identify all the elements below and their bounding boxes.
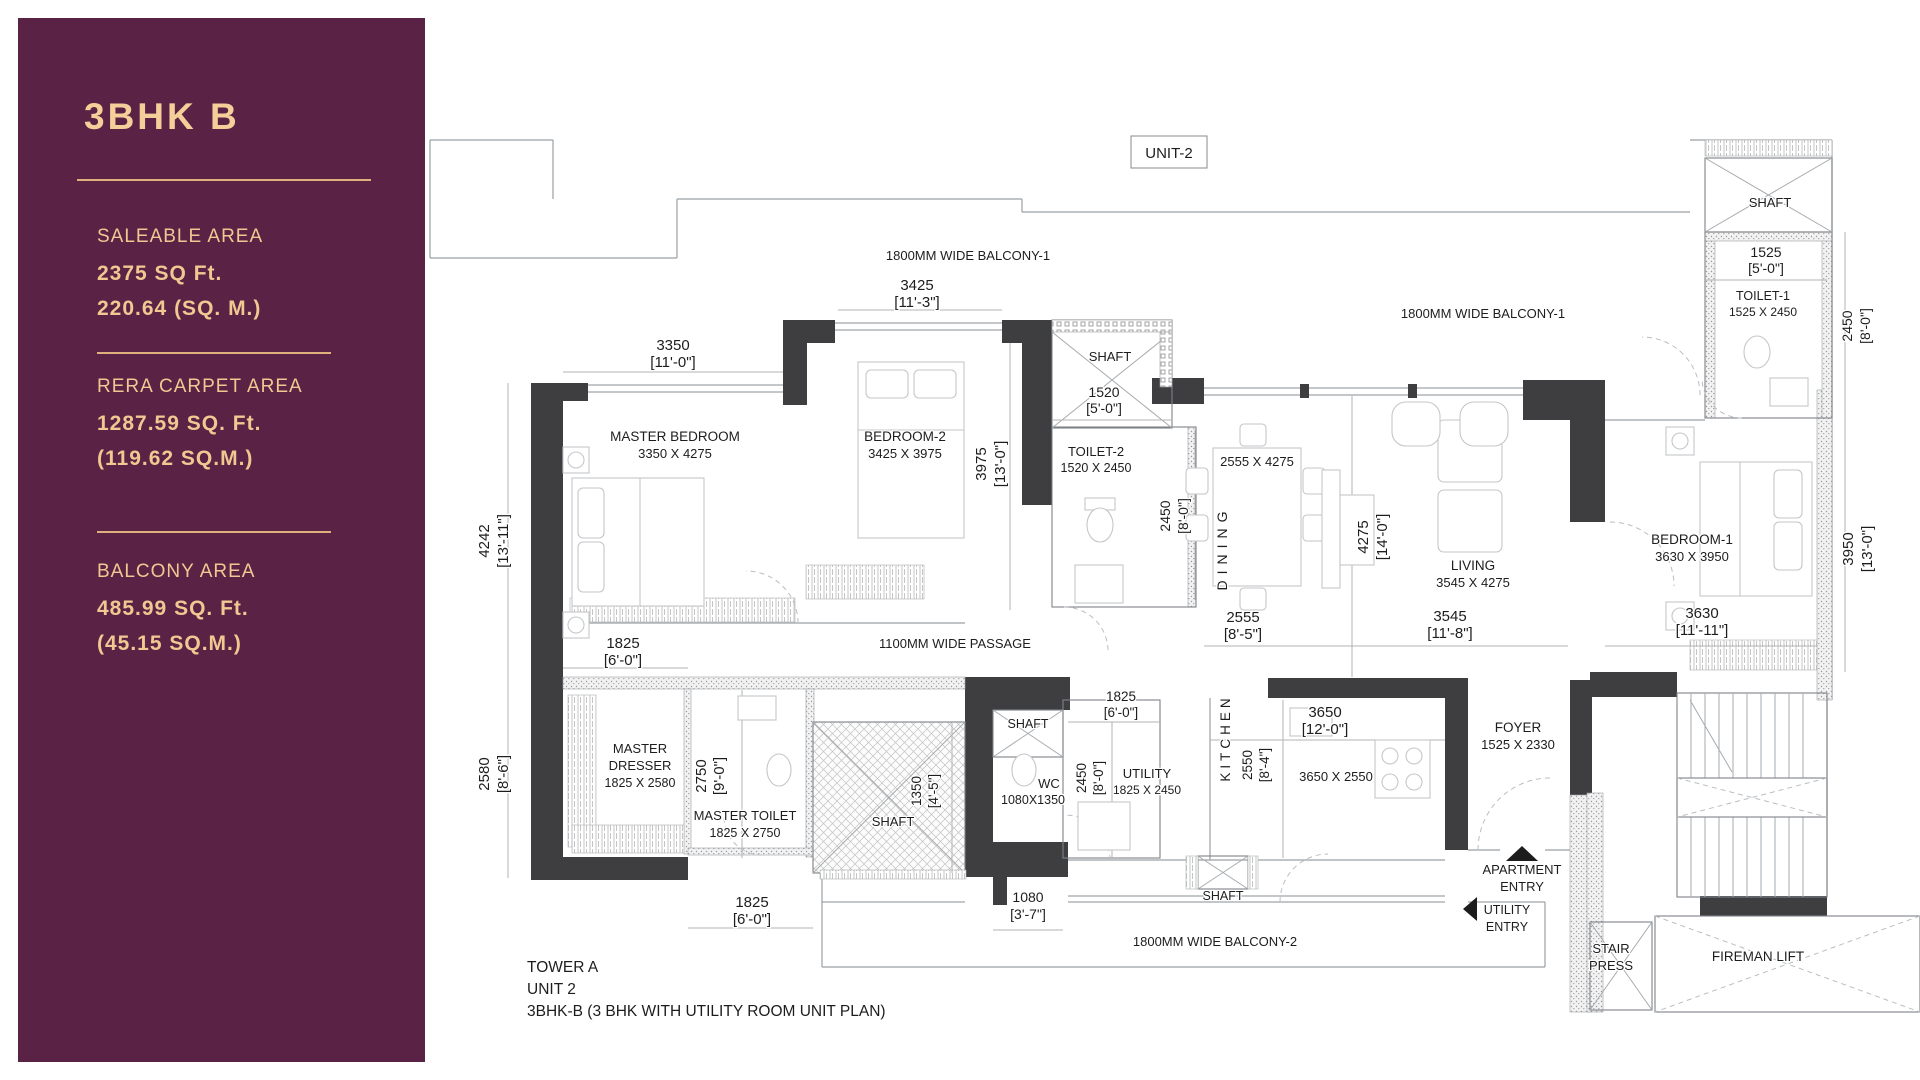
dim-3545-mm: 3545 — [1433, 608, 1466, 625]
dim-1520-ft: [5'-0"] — [1086, 400, 1122, 416]
room-master-dresser-2: DRESSER — [609, 758, 672, 773]
footer-line-2: UNIT 2 — [527, 981, 576, 998]
shaft-topright — [1705, 140, 1832, 232]
room-toilet-2-size: 1520 X 2450 — [1061, 461, 1132, 475]
staircase — [1677, 693, 1827, 897]
utility-entry-arrow-icon — [1463, 897, 1477, 921]
dim-4275-mm: 4275 — [1355, 520, 1372, 553]
dim-2450-toilet2-ft: [8'-0"] — [1175, 498, 1191, 534]
room-toilet-1: TOILET-1 — [1736, 289, 1790, 303]
utility-entry-1: UTILITY — [1484, 903, 1531, 917]
dim-2550-ft: [8'-4"] — [1257, 748, 1272, 782]
dim-1350-ft: [4'-5"] — [926, 774, 941, 808]
dim-2450-utility-ft: [8'-0"] — [1091, 761, 1106, 795]
apartment-entry-2: ENTRY — [1500, 879, 1544, 894]
dim-2555-mm: 2555 — [1226, 609, 1259, 626]
floor-plan: UNIT-21800MM WIDE BALCONY-13425[11'-3"]3… — [0, 0, 1920, 1080]
room-master-dresser-1: MASTER — [613, 741, 667, 756]
dim-2750-mm: 2750 — [693, 759, 710, 792]
dim-1825-mtoilet-ft: [6'-0"] — [733, 911, 771, 928]
room-master-bedroom-size: 3350 X 4275 — [638, 446, 712, 461]
room-wc: WC — [1038, 776, 1060, 791]
room-foyer-size: 1525 X 2330 — [1481, 737, 1555, 752]
room-dining-size: 2555 X 4275 — [1220, 454, 1294, 469]
apartment-entry-1: APARTMENT — [1483, 862, 1562, 877]
stair-press-1: STAIR — [1592, 941, 1629, 956]
dim-1825-mtoilet-mm: 1825 — [735, 894, 768, 911]
dim-3650-ft: [12'-0"] — [1302, 721, 1349, 738]
apartment-entry-arrow-icon — [1506, 846, 1538, 861]
room-utility-size: 1825 X 2450 — [1113, 783, 1181, 797]
dim-2750-ft: [9'-0"] — [711, 757, 728, 795]
room-master-toilet-size: 1825 X 2750 — [710, 826, 781, 840]
room-master-bedroom: MASTER BEDROOM — [610, 429, 740, 444]
dim-4242-mm: 4242 — [476, 524, 493, 557]
room-kitchen-size: 3650 X 2550 — [1299, 769, 1373, 784]
dim-4275-ft: [14'-0"] — [1374, 514, 1391, 561]
dim-2450-toilet1-mm: 2450 — [1839, 310, 1855, 341]
furniture — [563, 336, 1812, 850]
dim-1525-mm: 1525 — [1750, 244, 1781, 260]
room-bedroom-2-size: 3425 X 3975 — [868, 446, 942, 461]
unit-tag: UNIT-2 — [1145, 145, 1193, 162]
utility-appliance — [1078, 802, 1130, 850]
dim-2555-ft: [8'-5"] — [1224, 626, 1262, 643]
shaft-central — [813, 722, 966, 879]
dim-2450-utility-mm: 2450 — [1074, 763, 1089, 793]
bedroom-1-bed — [1666, 427, 1812, 630]
balcony-1-label-right: 1800MM WIDE BALCONY-1 — [1401, 306, 1565, 321]
room-foyer: FOYER — [1495, 720, 1542, 735]
dimension-lines — [508, 232, 1845, 930]
dim-4242-ft: [13'-11"] — [495, 514, 512, 568]
passage-label: 1100MM WIDE PASSAGE — [879, 636, 1031, 651]
footer-line-3: 3BHK-B (3 BHK WITH UTILITY ROOM UNIT PLA… — [527, 1003, 886, 1020]
dim-3975-mm: 3975 — [973, 447, 990, 480]
dim-1350-mm: 1350 — [909, 776, 924, 806]
footer-line-1: TOWER A — [527, 959, 599, 976]
room-master-dresser-size: 1825 X 2580 — [605, 776, 676, 790]
shaft-top-label: SHAFT — [1089, 349, 1132, 364]
fireman-lift-room — [1655, 916, 1920, 1012]
utility-entry-2: ENTRY — [1486, 920, 1529, 934]
room-utility: UTILITY — [1123, 766, 1172, 781]
dim-2580-ft: [8'-6"] — [495, 755, 512, 793]
dim-1080-mm: 1080 — [1012, 889, 1043, 905]
dim-3630-mm: 3630 — [1685, 605, 1718, 622]
dim-3350-ft: [11'-0"] — [650, 354, 695, 371]
room-living: LIVING — [1451, 558, 1495, 573]
dim-1825-utility-mm: 1825 — [1106, 689, 1136, 704]
shaft-topright-label: SHAFT — [1749, 195, 1792, 210]
room-toilet-2: TOILET-2 — [1068, 444, 1124, 459]
room-toilet-1-size: 1525 X 2450 — [1729, 305, 1797, 319]
stair-press-2: PRESS — [1589, 958, 1633, 973]
shaft-central-label: SHAFT — [872, 814, 915, 829]
shaft-kitchen-label: SHAFT — [1203, 889, 1244, 903]
shaft-wc-label: SHAFT — [1008, 717, 1049, 731]
dim-1825-dresser-ft: [6'-0"] — [604, 652, 642, 669]
dining-set — [1186, 424, 1325, 610]
room-bedroom-2: BEDROOM-2 — [864, 429, 946, 444]
dim-3950-mm: 3950 — [1840, 532, 1857, 565]
brochure-page: 3BHK B SALEABLE AREA 2375 SQ Ft. 220.64 … — [0, 0, 1920, 1080]
dim-3650-mm: 3650 — [1308, 704, 1341, 721]
balcony-1-label-left: 1800MM WIDE BALCONY-1 — [886, 248, 1050, 263]
room-master-toilet: MASTER TOILET — [694, 808, 797, 823]
dim-2580-mm: 2580 — [476, 757, 493, 790]
dim-3545-ft: [11'-8"] — [1427, 625, 1472, 642]
room-living-size: 3545 X 4275 — [1436, 575, 1510, 590]
dim-1525-ft: [5'-0"] — [1748, 260, 1784, 276]
room-bedroom-1: BEDROOM-1 — [1651, 532, 1733, 547]
dim-1825-dresser-mm: 1825 — [606, 635, 639, 652]
shaft-kitchen — [1186, 856, 1258, 889]
dim-3425-mm: 3425 — [900, 277, 933, 294]
room-wc-size: 1080X1350 — [1001, 793, 1065, 807]
dim-2450-toilet2-mm: 2450 — [1157, 500, 1173, 531]
room-dining: DINING — [1214, 506, 1230, 591]
dim-3350-mm: 3350 — [656, 337, 689, 354]
balcony-2-label: 1800MM WIDE BALCONY-2 — [1133, 934, 1297, 949]
dim-3975-ft: [13'-0"] — [992, 441, 1009, 488]
dim-2550-mm: 2550 — [1240, 750, 1255, 780]
room-kitchen: KITCHEN — [1218, 694, 1233, 781]
dim-1825-utility-ft: [6'-0"] — [1104, 705, 1138, 720]
dim-3630-ft: [11'-11"] — [1676, 622, 1729, 639]
dim-1520-mm: 1520 — [1088, 384, 1119, 400]
dim-3950-ft: [13'-0"] — [1859, 526, 1876, 573]
room-bedroom-1-size: 3630 X 3950 — [1655, 549, 1729, 564]
dim-1080-ft: [3'-7"] — [1010, 906, 1046, 922]
fireman-lift-label: FIREMAN LIFT — [1712, 949, 1804, 964]
dim-2450-toilet1-ft: [8'-0"] — [1857, 308, 1873, 344]
dim-3425-ft: [11'-3"] — [894, 294, 939, 311]
